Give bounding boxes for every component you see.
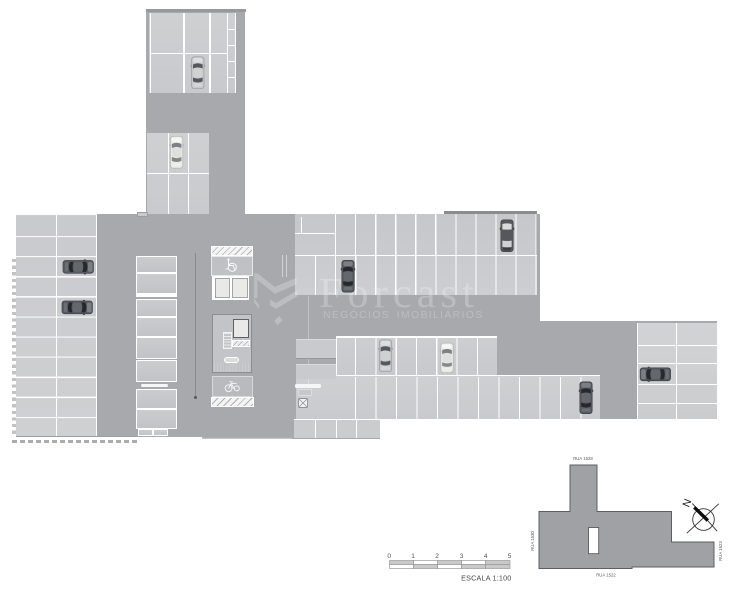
svg-text:RUA 1623: RUA 1623 bbox=[718, 541, 723, 561]
svg-text:RUA 1522: RUA 1522 bbox=[596, 573, 616, 578]
svg-text:5: 5 bbox=[508, 553, 512, 560]
svg-text:RUA 1528: RUA 1528 bbox=[573, 456, 593, 461]
svg-text:4: 4 bbox=[484, 553, 488, 560]
svg-text:2: 2 bbox=[435, 553, 439, 560]
svg-text:0: 0 bbox=[387, 553, 391, 560]
svg-text:ESCALA 1:100: ESCALA 1:100 bbox=[461, 574, 511, 583]
svg-text:1: 1 bbox=[411, 553, 415, 560]
svg-text:3: 3 bbox=[460, 553, 464, 560]
svg-text:RUA 1530: RUA 1530 bbox=[530, 531, 535, 551]
svg-text:N: N bbox=[680, 497, 694, 509]
